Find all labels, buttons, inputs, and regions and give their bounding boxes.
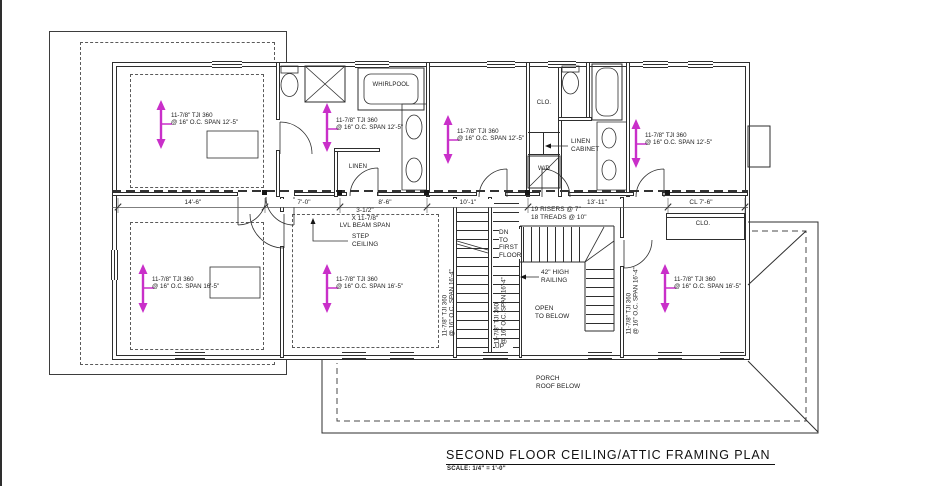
dimension-label: 8'-6" <box>359 199 411 207</box>
joist-spacing-span: @ 16" O.C. SPAN 16'-5" <box>336 283 403 290</box>
joist-spacing-span: @ 16" O.C. SPAN 12'-5" <box>171 119 238 126</box>
fixture-label-closet-bedroom3: CLO. <box>688 221 718 229</box>
fixture-label-closet-bath: CLO. <box>532 100 556 108</box>
closet-shelf-line <box>528 154 560 155</box>
joist-note-stair-right: 11-7/8" TJI 360 @ 16" O.C. SPAN 16'-4" <box>494 248 509 344</box>
window <box>720 352 744 359</box>
joist-spacing-span: @ 16" O.C. SPAN 16'-4" <box>633 238 640 334</box>
dimension-label: 7'-0" <box>278 199 330 207</box>
window <box>588 352 612 359</box>
joist-note-stair-left: 11-7/8" TJI 360 @ 16" O.C. SPAN 16'-4" <box>442 240 457 336</box>
joist-note-master-bedroom: 11-7/8" TJI 360 @ 16" O.C. SPAN 16'-5" <box>336 276 403 291</box>
joist-spacing-span: @ 16" O.C. SPAN 16'-5" <box>152 283 219 290</box>
floor-plan: 8'-0" CLG. HEIGHT 11-7/8" TJI 360 @ 16" … <box>0 0 950 486</box>
stair-risers-note: 19 RISERS @ 7" <box>531 206 601 214</box>
drawing-title: SECOND FLOOR CEILING/ATTIC FRAMING PLAN <box>446 448 775 465</box>
fixture-label-linen: LINEN <box>340 164 376 172</box>
wall <box>662 192 748 196</box>
window <box>111 250 118 280</box>
joist-size: 11-7/8" TJI 360 <box>645 132 712 139</box>
joist-spacing-span: @ 16" O.C. SPAN 12'-5" <box>457 135 524 142</box>
dimension-label: CL 7'-6" <box>675 199 727 207</box>
ceiling-break-dashed <box>130 74 264 188</box>
wall <box>568 192 634 196</box>
wall <box>558 62 562 197</box>
joist-size: 11-7/8" TJI 360 <box>626 238 633 334</box>
joist-note-wic-lower: 11-7/8" TJI 360 @ 16" O.C. SPAN 16'-5" <box>152 276 219 291</box>
drawing-scale: SCALE: 1/4" = 1'-0" <box>447 466 506 472</box>
open-to-below-note: OPEN TO BELOW <box>535 305 585 320</box>
joist-note-bedroom4: 11-7/8" TJI 360 @ 16" O.C. SPAN 12'-5" <box>457 128 524 143</box>
joist-note-bedroom3: 11-7/8" TJI 360 @ 16" O.C. SPAN 16'-5" <box>674 276 741 291</box>
window <box>688 61 713 68</box>
window <box>175 352 205 359</box>
attic-stair-treads <box>457 203 488 353</box>
window <box>487 61 515 68</box>
railing-note: 42" HIGH RAILING <box>541 269 591 284</box>
wall <box>377 192 477 196</box>
joist-size: 11-7/8" TJI 360 <box>674 276 741 283</box>
window <box>342 352 366 359</box>
wall <box>558 117 592 121</box>
lvl-beam-note: 3-1/2" X 11-7/8" LVL BEAM SPAN <box>322 207 408 230</box>
fixture-label-washer-dryer: W/D <box>532 166 556 174</box>
joist-note-wic-his: 11-7/8" TJI 360 @ 16" O.C. SPAN 12'-5" <box>171 112 238 127</box>
window <box>355 61 389 68</box>
step-ceiling-note: STEP CEILING <box>352 233 392 248</box>
window <box>658 352 682 359</box>
joist-spacing-span: @ 16" O.C. SPAN 16'-4" <box>449 240 456 336</box>
joist-size: 11-7/8" TJI 360 <box>336 276 403 283</box>
joist-size: 11-7/8" TJI 360 <box>494 248 501 344</box>
joist-size: 11-7/8" TJI 360 <box>442 240 449 336</box>
joist-spacing-span: @ 16" O.C. SPAN 16'-5" <box>674 283 741 290</box>
closet-shelf-line <box>528 132 560 133</box>
joist-note-bedroom2: 11-7/8" TJI 360 @ 16" O.C. SPAN 12'-5" <box>645 132 712 147</box>
bedroom3-closet-shelf-line <box>667 217 744 218</box>
joist-size: 11-7/8" TJI 360 <box>152 276 219 283</box>
wall <box>505 192 540 196</box>
stair-treads-note: 18 TREADS @ 10" <box>531 214 601 222</box>
wall <box>294 192 347 196</box>
joist-spacing-span: @ 16" O.C. SPAN 12'-5" <box>336 124 403 131</box>
linen-closet-wall <box>334 148 380 152</box>
window <box>643 61 668 68</box>
joist-size: 11-7/8" TJI 360 <box>457 128 524 135</box>
wall <box>276 62 280 120</box>
wall <box>620 266 624 358</box>
porch-roof-note: PORCH ROOF BELOW <box>536 375 606 390</box>
wall <box>626 62 630 197</box>
dimension-label: 10'-1" <box>442 199 494 207</box>
stair-wall <box>488 197 492 358</box>
joist-spacing-span: @ 16" O.C. SPAN 12'-5" <box>645 139 712 146</box>
joist-note-hall: 11-7/8" TJI 360 @ 16" O.C. SPAN 16'-4" <box>626 238 641 334</box>
joist-note-master-bath: 11-7/8" TJI 360 @ 16" O.C. SPAN 12'-5" <box>336 117 403 132</box>
window <box>212 61 242 68</box>
main-stair-treads <box>523 227 583 262</box>
joist-size: 11-7/8" TJI 360 <box>336 117 403 124</box>
wall <box>112 192 238 196</box>
fixture-label-whirlpool: WHIRLPOOL <box>358 82 424 90</box>
sheet-edge-line <box>0 0 2 486</box>
wall <box>586 62 590 120</box>
wall <box>280 246 284 358</box>
wall <box>526 62 530 197</box>
joist-spacing-span: @ 16" O.C. SPAN 16'-4" <box>501 248 508 344</box>
joist-size: 11-7/8" TJI 360 <box>171 112 238 119</box>
wall <box>426 62 430 197</box>
fixture-label-linen-cabinet: LINEN CABINET <box>571 138 611 153</box>
lvl-beam-dashed-line <box>112 190 748 192</box>
window <box>390 352 414 359</box>
dimension-label: 14'-6" <box>167 199 219 207</box>
window <box>548 61 576 68</box>
chimney-chase <box>748 126 770 167</box>
cabinet-divider-line <box>543 132 544 154</box>
